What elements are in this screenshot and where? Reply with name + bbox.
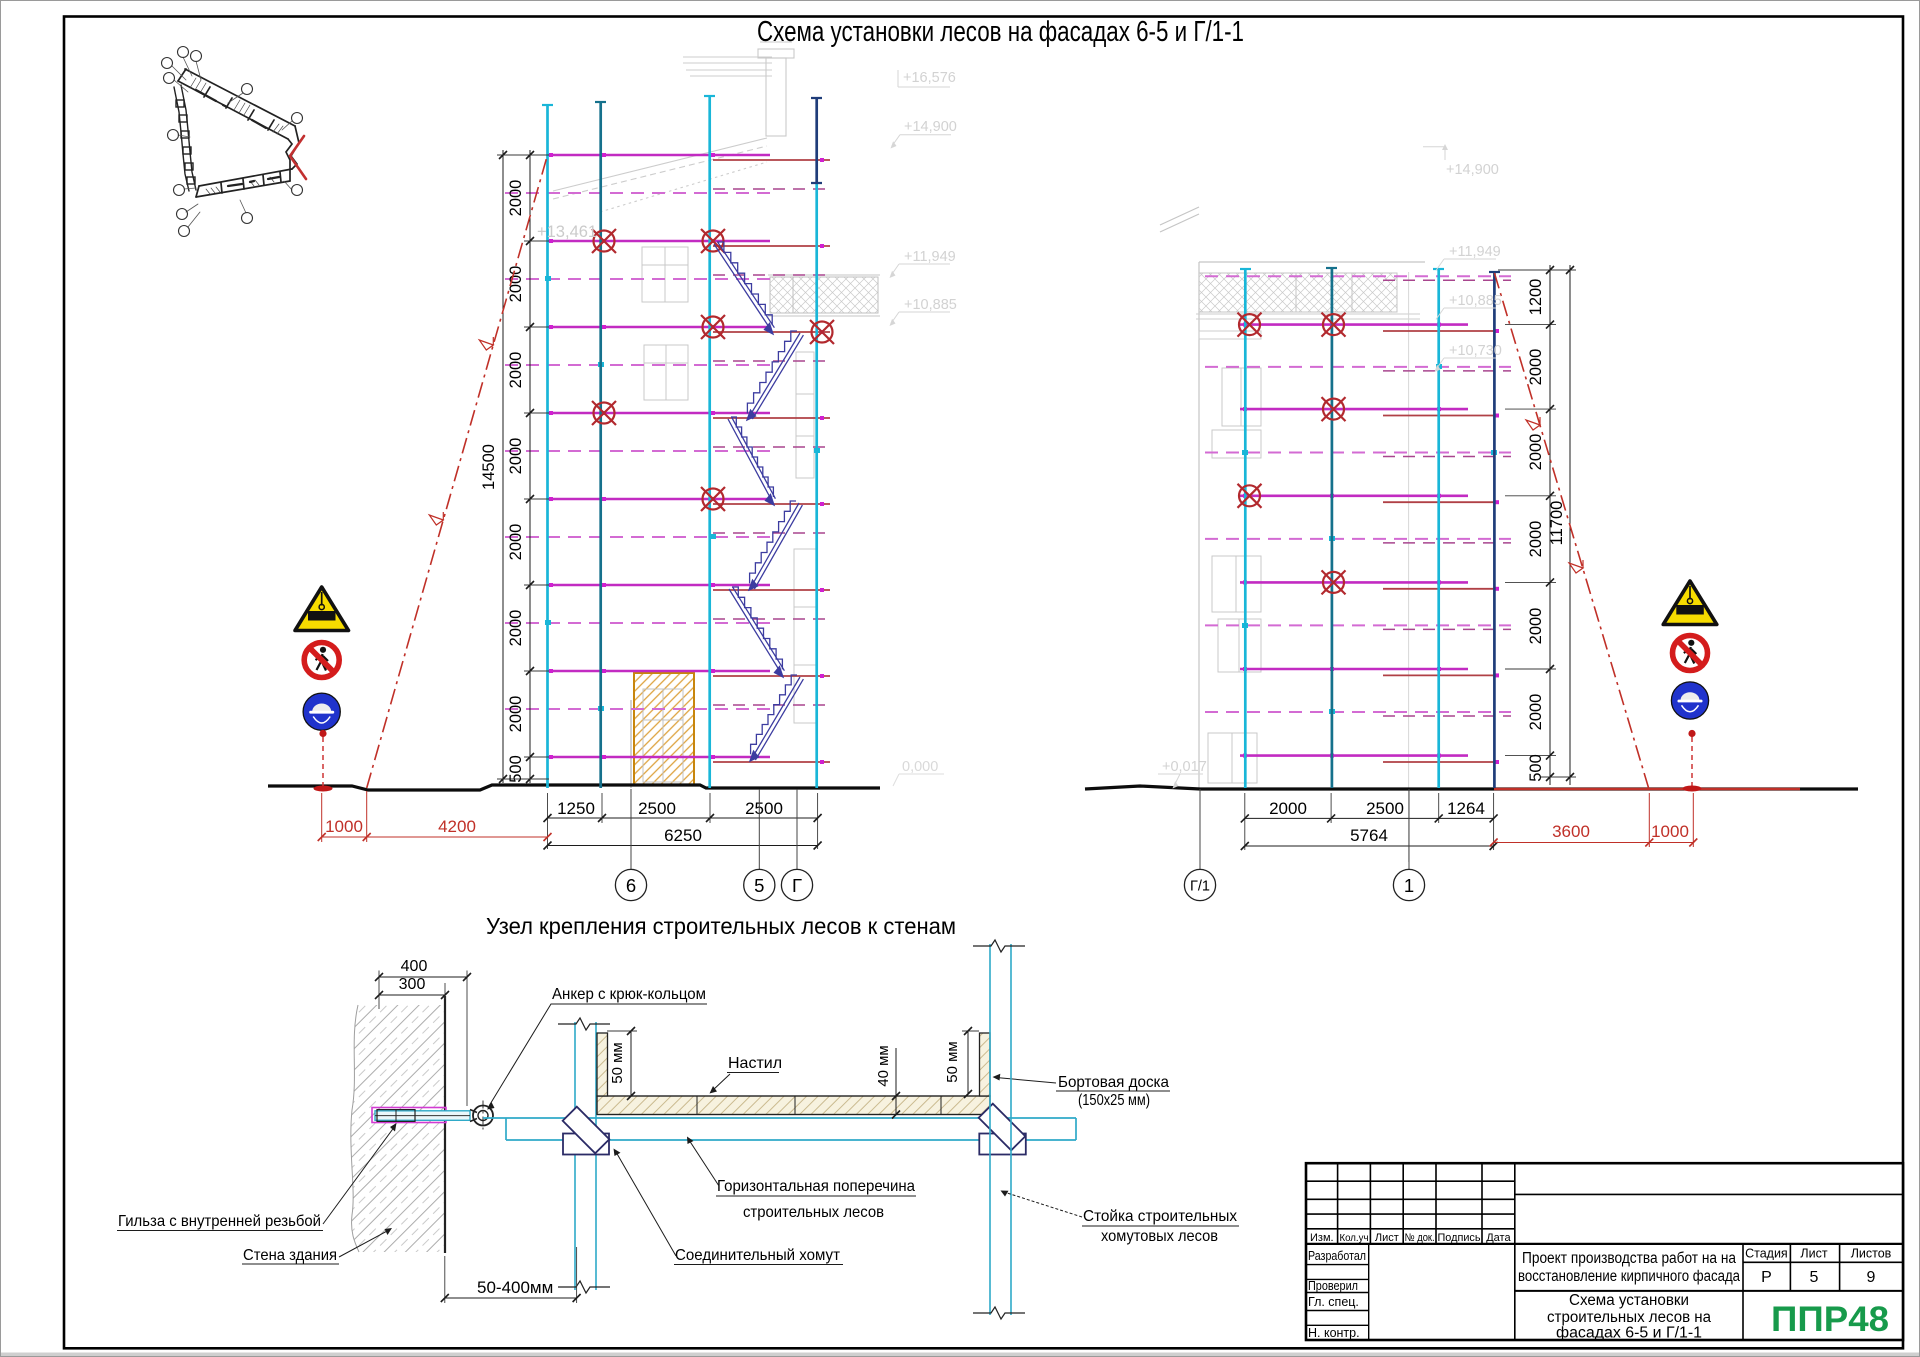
svg-text:Н. контр.: Н. контр. <box>1308 1326 1360 1340</box>
svg-text:Подпись: Подпись <box>1438 1232 1481 1244</box>
svg-text:Узел крепления строительных ле: Узел крепления строительных лесов к стен… <box>486 913 956 939</box>
svg-text:50-400мм: 50-400мм <box>477 1278 553 1297</box>
svg-text:2000: 2000 <box>1527 608 1545 645</box>
svg-text:Р: Р <box>1761 1269 1772 1286</box>
svg-text:9: 9 <box>1867 1269 1876 1286</box>
svg-text:14500: 14500 <box>480 444 498 490</box>
svg-text:5764: 5764 <box>1350 826 1388 845</box>
svg-text:50 мм: 50 мм <box>944 1041 961 1082</box>
svg-text:2000: 2000 <box>1527 521 1545 558</box>
svg-text:4200: 4200 <box>438 817 476 836</box>
svg-text:+14,900: +14,900 <box>904 119 957 135</box>
svg-text:2000: 2000 <box>1269 799 1307 818</box>
svg-text:500: 500 <box>1527 754 1545 782</box>
svg-text:6: 6 <box>626 875 636 896</box>
svg-text:Стадия: Стадия <box>1745 1247 1788 1261</box>
svg-text:+11,949: +11,949 <box>904 249 956 265</box>
svg-text:2000: 2000 <box>1527 694 1545 731</box>
svg-text:Бортовая доска: Бортовая доска <box>1058 1074 1169 1091</box>
svg-text:+14,900: +14,900 <box>1446 162 1499 178</box>
svg-text:+0,017: +0,017 <box>1162 759 1207 775</box>
svg-text:5: 5 <box>1810 1269 1819 1286</box>
svg-text:40 мм: 40 мм <box>875 1045 892 1086</box>
svg-text:2000: 2000 <box>507 266 525 303</box>
svg-text:6250: 6250 <box>664 826 702 845</box>
svg-text:Гильза с внутренней резьбой: Гильза с внутренней резьбой <box>118 1213 321 1230</box>
svg-text:1200: 1200 <box>1527 279 1545 316</box>
svg-text:400: 400 <box>401 958 428 975</box>
svg-text:+16,576: +16,576 <box>903 70 956 86</box>
svg-text:Листов: Листов <box>1851 1247 1892 1261</box>
svg-text:2500: 2500 <box>1366 799 1404 818</box>
svg-text:300: 300 <box>399 976 426 993</box>
svg-text:Проверил: Проверил <box>1308 1279 1358 1293</box>
svg-text:2000: 2000 <box>507 610 525 647</box>
svg-text:Горизонтальная поперечина: Горизонтальная поперечина <box>717 1178 915 1195</box>
svg-text:50 мм: 50 мм <box>609 1042 626 1083</box>
svg-text:Схема установки: Схема установки <box>1569 1292 1689 1309</box>
svg-text:11700: 11700 <box>1548 501 1566 546</box>
svg-text:Лист: Лист <box>1800 1247 1827 1261</box>
svg-text:Г/1: Г/1 <box>1190 879 1210 895</box>
svg-text:Кол.уч: Кол.уч <box>1340 1232 1369 1244</box>
svg-text:Дата: Дата <box>1486 1232 1511 1244</box>
svg-text:Гл. спец.: Гл. спец. <box>1308 1295 1359 1309</box>
svg-text:1000: 1000 <box>1651 822 1689 841</box>
svg-text:восстановление кирпичного фаса: восстановление кирпичного фасада <box>1518 1268 1740 1285</box>
svg-text:ППР48: ППР48 <box>1771 1300 1889 1339</box>
svg-text:Соединительный хомут: Соединительный хомут <box>675 1247 841 1264</box>
svg-text:№ док.: № док. <box>1405 1232 1435 1244</box>
svg-text:Изм.: Изм. <box>1310 1232 1334 1244</box>
svg-text:+10,885: +10,885 <box>1449 293 1502 309</box>
svg-text:Стена здания: Стена здания <box>243 1247 337 1264</box>
svg-text:фасадах 6-5 и Г/1-1: фасадах 6-5 и Г/1-1 <box>1556 1325 1702 1342</box>
svg-text:2000: 2000 <box>507 180 525 217</box>
svg-text:+13,461: +13,461 <box>537 223 597 241</box>
svg-text:2000: 2000 <box>1527 349 1545 386</box>
svg-text:0,000: 0,000 <box>902 759 938 775</box>
svg-text:строительных лесов на: строительных лесов на <box>1547 1309 1711 1326</box>
svg-text:строительных лесов: строительных лесов <box>743 1204 884 1221</box>
svg-text:2000: 2000 <box>507 524 525 561</box>
svg-text:Схема установки лесов на фасад: Схема установки лесов на фасадах 6-5 и Г… <box>757 16 1244 48</box>
svg-text:1000: 1000 <box>325 817 363 836</box>
svg-text:500: 500 <box>507 755 525 783</box>
svg-text:2500: 2500 <box>638 799 676 818</box>
svg-text:1250: 1250 <box>557 799 595 818</box>
svg-text:Лист: Лист <box>1375 1232 1399 1244</box>
svg-text:5: 5 <box>754 875 764 896</box>
svg-text:Настил: Настил <box>728 1055 782 1072</box>
svg-text:2000: 2000 <box>1527 434 1545 471</box>
svg-text:2500: 2500 <box>745 799 783 818</box>
svg-text:Проект производства работ на н: Проект производства работ на на <box>1522 1250 1736 1267</box>
svg-text:(150х25 мм): (150х25 мм) <box>1078 1092 1150 1109</box>
svg-text:1264: 1264 <box>1447 799 1485 818</box>
svg-text:3600: 3600 <box>1552 822 1590 841</box>
svg-text:+10,885: +10,885 <box>904 297 957 313</box>
svg-text:Анкер с крюк-кольцом: Анкер с крюк-кольцом <box>552 986 706 1003</box>
svg-text:1: 1 <box>1404 875 1414 896</box>
svg-text:Разработал: Разработал <box>1308 1249 1366 1263</box>
svg-text:Г: Г <box>792 875 802 896</box>
svg-text:+11,949: +11,949 <box>1449 244 1501 260</box>
svg-text:2000: 2000 <box>507 696 525 733</box>
svg-text:2000: 2000 <box>507 352 525 389</box>
svg-text:Стойка строительных: Стойка строительных <box>1083 1208 1237 1225</box>
svg-text:+10,730: +10,730 <box>1449 343 1502 359</box>
svg-text:2000: 2000 <box>507 438 525 475</box>
svg-text:хомутовых лесов: хомутовых лесов <box>1101 1228 1218 1245</box>
